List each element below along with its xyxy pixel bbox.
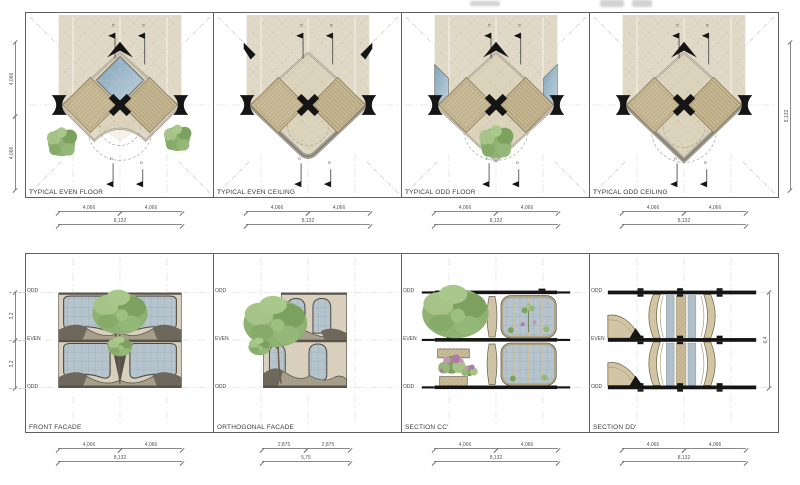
section-dd-total-dim: 8,132: [622, 454, 746, 462]
section-dd-right-total-dim: 6,4: [762, 292, 770, 388]
panel-typical-even-floor: TYPICAL EVEN FLOOR: [25, 12, 215, 198]
dim-segment: 6,4: [762, 292, 770, 388]
panel-section-cc: SECTION CC': [401, 253, 591, 433]
panel-section-dd: SECTION DD': [589, 253, 779, 433]
dim-segment: 4,066: [434, 441, 496, 449]
panel-title: TYPICAL ODD FLOOR: [405, 189, 476, 196]
panel-front-facade: FRONT FACADE: [25, 253, 215, 433]
dim-segment: 4,066: [58, 204, 120, 212]
orthogonal-facade-drawing: [214, 254, 402, 432]
section-cc-drawing: [402, 254, 590, 432]
balcony-wedge-lower: [608, 362, 643, 385]
plan1-width-dim: 4,066 4,066: [58, 204, 182, 212]
panel-title: FRONT FACADE: [29, 424, 81, 431]
panel-typical-odd-ceiling: TYPICAL ODD CEILING: [589, 12, 779, 198]
dim-segment: 8,132: [783, 42, 791, 190]
plan-right-total-dim: 8,132: [783, 42, 791, 190]
panel-title: TYPICAL EVEN FLOOR: [29, 189, 103, 196]
level-label: EVEN: [215, 336, 229, 342]
dim-segment: 4,066: [496, 441, 558, 449]
plan-left-height-dim: 4,066 4,066: [8, 42, 16, 190]
level-label: ODD: [403, 384, 414, 390]
dim-segment: 4,066: [120, 441, 182, 449]
dim-segment: 5,75: [262, 454, 350, 462]
glazing-lower: [501, 343, 556, 386]
plan-odd-ceiling-drawing: [590, 13, 778, 197]
dim-segment: 3,2: [8, 340, 16, 388]
dim-segment: 8,132: [622, 454, 746, 462]
plan3-width-dim: 4,066 4,066: [434, 204, 558, 212]
dim-segment: 4,066: [684, 204, 746, 212]
plan1-total-dim: 8,132: [58, 217, 182, 225]
dim-segment: 2,875: [262, 441, 306, 449]
level-label: ODD: [591, 384, 602, 390]
panel-typical-odd-floor: TYPICAL ODD FLOOR: [401, 12, 591, 198]
panel-typical-even-ceiling: TYPICAL EVEN CEILING: [213, 12, 403, 198]
glazing-upper: [501, 296, 556, 339]
cropped-text-artifact: [600, 0, 624, 7]
plan2-width-dim: 4,066 4,066: [246, 204, 370, 212]
panel-title: SECTION DD': [593, 424, 637, 431]
planters: [438, 349, 478, 386]
dim-segment: 4,066: [8, 42, 16, 116]
level-label: ODD: [403, 288, 414, 294]
dim-segment: 4,066: [120, 204, 182, 212]
plan3-total-dim: 8,132: [434, 217, 558, 225]
dim-segment: 4,066: [622, 441, 684, 449]
cropped-text-artifact: [470, 1, 500, 6]
dim-segment: 4,066: [684, 441, 746, 449]
dim-segment: 4,066: [8, 116, 16, 190]
level-label: EVEN: [591, 336, 605, 342]
level-label: ODD: [591, 288, 602, 294]
elevation-left-floor-height-dim: 3,2 3,2: [8, 292, 16, 388]
front-facade-drawing: [26, 254, 214, 432]
panel-title: SECTION CC': [405, 424, 449, 431]
front-facade-width-dim: 4,066 4,066: [58, 441, 182, 449]
panel-title: TYPICAL EVEN CEILING: [217, 189, 295, 196]
level-label: ODD: [27, 288, 38, 294]
plan-even-ceiling-drawing: [214, 13, 402, 197]
plan4-width-dim: 4,066 4,066: [622, 204, 746, 212]
section-dd-drawing: [590, 254, 778, 432]
dim-segment: 8,132: [246, 217, 370, 225]
section-cc-width-dim: 4,066 4,066: [434, 441, 558, 449]
orthogonal-facade-total-dim: 5,75: [262, 454, 350, 462]
dim-segment: 4,066: [58, 441, 120, 449]
level-label: EVEN: [27, 336, 41, 342]
section-cc-total-dim: 8,132: [434, 454, 558, 462]
plan4-total-dim: 8,132: [622, 217, 746, 225]
dim-segment: 8,132: [58, 454, 182, 462]
dim-segment: 4,066: [622, 204, 684, 212]
orthogonal-facade-width-dim: 2,875 2,875: [262, 441, 350, 449]
panel-title: ORTHOGONAL FACADE: [217, 424, 294, 431]
drawing-sheet: C' D' C D: [0, 0, 800, 485]
dim-segment: 8,132: [58, 217, 182, 225]
level-label: ODD: [215, 384, 226, 390]
dim-segment: 4,066: [246, 204, 308, 212]
section-dd-width-dim: 4,066 4,066: [622, 441, 746, 449]
plan-odd-floor-drawing: [402, 13, 590, 197]
dim-segment: 4,066: [496, 204, 558, 212]
level-label: EVEN: [403, 336, 417, 342]
level-label: ODD: [27, 384, 38, 390]
plan-even-floor-drawing: [26, 13, 214, 197]
wall-bay-lower: [649, 342, 715, 386]
dim-segment: 8,132: [434, 217, 558, 225]
front-facade-total-dim: 8,132: [58, 454, 182, 462]
wall-bay-upper: [649, 295, 715, 339]
dim-segment: 2,875: [306, 441, 350, 449]
level-label: ODD: [215, 288, 226, 294]
dim-segment: 3,2: [8, 292, 16, 340]
dim-segment: 4,066: [308, 204, 370, 212]
dim-segment: 8,132: [434, 454, 558, 462]
cropped-text-artifact: [632, 0, 652, 7]
panel-title: TYPICAL ODD CEILING: [593, 189, 668, 196]
dim-segment: 4,066: [434, 204, 496, 212]
dim-segment: 8,132: [622, 217, 746, 225]
balcony-wedge-upper: [608, 315, 643, 338]
panel-orthogonal-facade: ORTHOGONAL FACADE: [213, 253, 403, 433]
plan2-total-dim: 8,132: [246, 217, 370, 225]
